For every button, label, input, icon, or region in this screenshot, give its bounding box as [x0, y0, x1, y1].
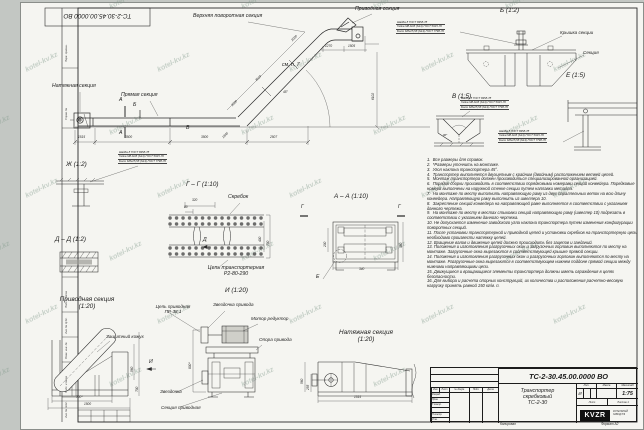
cut-mark-v: В	[186, 126, 189, 132]
label-upper-turn-section: Верхняя поворотная секция	[193, 14, 262, 20]
top-left-stamp: ТС-2-30.45.00.0000 ВО	[47, 11, 148, 18]
view-title-drive20: Приводная секция (1:20)	[42, 297, 132, 311]
date-column	[482, 392, 498, 423]
view-title-tension20: Натяжная секция (1:20)	[315, 330, 417, 344]
view-drive20	[48, 328, 139, 410]
mass-value	[596, 388, 616, 398]
label-scraper: Скребок	[228, 195, 248, 201]
label-motor-reducer: Мотор редуктор	[251, 317, 289, 322]
fastener-callout-4: Шайба 8 ГОСТ 6958-78 Гайка М8-6Н5 (S13) …	[498, 130, 547, 143]
label-drive-chain: Цепь приводная ПР-38,1	[143, 305, 203, 315]
view-title-b: Б (1:2)	[500, 8, 519, 15]
view-title-i20: И (1:20)	[225, 288, 248, 295]
dim-seg1: 1515	[78, 136, 85, 139]
detail-e	[563, 100, 637, 150]
sheets-label: Листов 1	[607, 398, 638, 405]
frame-label-podp-data-2: Подп. и дата	[65, 291, 68, 308]
fastener-line: Болт М8х25,58 (S13) ГОСТ 7798-70	[498, 139, 547, 143]
dim-top1: 1270	[325, 45, 332, 48]
label-see-note: см. п. 7	[282, 63, 300, 69]
lit-value: И	[576, 388, 583, 398]
dim-seg3: 3500	[201, 136, 208, 139]
dim-aa-340: 340	[359, 268, 364, 271]
label-conveyor-chain: Цепь транспортерная Р2-80-290	[198, 266, 274, 277]
dim-v-90: 90*	[443, 134, 447, 137]
frame-label-perv-primen: Перв. примен.	[65, 44, 68, 62]
view-mark-d: Д	[203, 238, 207, 244]
frame-label-podp-data-1: Подп. и дата	[65, 376, 68, 393]
lit-cell-2	[583, 388, 590, 398]
label-sprocket: Звездочка	[160, 390, 182, 395]
cut-mark-a-bottom: А	[119, 131, 122, 137]
drawing-page: kotel-kv.kzkotel-kv.kzkotel-kv.kzkotel-k…	[0, 0, 644, 430]
label-tension-section: Натяжная секция	[52, 84, 96, 90]
dim-height: 6102	[372, 93, 375, 100]
dim-drive-700b: 700	[136, 387, 139, 392]
dim-top2: 1505	[348, 45, 355, 48]
label-section-cover: Крышка секции	[560, 31, 593, 36]
dim-seg2: 3500	[125, 136, 132, 139]
kvzr-logo-subtext: КОТЕЛЬНЫЙ ЗАВОД РФ	[613, 410, 628, 416]
logo-cell: KVZR КОТЕЛЬНЫЙ ЗАВОД РФ	[576, 405, 638, 423]
view-mark-i: И	[149, 360, 153, 366]
cut-mark-g-left: Г	[301, 205, 304, 211]
dim-i20-800: 800*	[189, 362, 192, 369]
view-title-e: Е (1:5)	[566, 73, 585, 80]
technical-notes: 1. Все размеры для справок. 2. *Размеры …	[427, 158, 640, 289]
detail-zh	[56, 166, 138, 206]
label-drive-section: Приводная секция	[355, 7, 399, 13]
fastener-line: Болт М8х25,58 (S13) ГОСТ 7798-70	[396, 30, 445, 34]
frame-label-vzam-inv: Взам. инв. №	[65, 342, 68, 359]
corner-stamp	[78, 410, 130, 422]
dim-seg4: 2507	[270, 136, 277, 139]
label-section: Секция	[583, 51, 599, 56]
dim-drive-560: 560	[131, 367, 134, 372]
view-gg	[169, 202, 270, 268]
title-block-number: ТС-2-30.45.00.0000 ВО	[498, 368, 638, 383]
fastener-callout-1: Шайба 8 ГОСТ 6958-78 Гайка М8-6Н5 (S13) …	[118, 151, 167, 164]
label-drive-section-view: Секция приводная	[161, 406, 201, 411]
label-protective-casing: Защитный кожух	[106, 335, 144, 340]
cut-mark-g-right: Г	[398, 205, 401, 211]
dim-gg-400: 400	[259, 237, 262, 242]
label-drive-sprocket: Звездочка привода	[213, 303, 254, 308]
view-title-v: В (1:5)	[452, 94, 471, 101]
dim-drive-700: 700*	[76, 396, 83, 399]
view-title-gg: Г – Г (1:10)	[186, 182, 219, 189]
label-straight-section: Прямая секция	[121, 93, 158, 99]
dim-drive-1500: 1500	[84, 403, 91, 406]
title-block: ТС-2-30.45.00.0000 ВО Транспортер скребк…	[430, 367, 637, 422]
dim-aa-200: 200	[324, 242, 327, 247]
dim-tension-255: 255	[307, 385, 310, 390]
docnum-column	[449, 392, 469, 423]
dim-gg-80: 80	[184, 206, 188, 209]
detail-v	[434, 111, 484, 146]
dim-gg-700: 700	[267, 241, 270, 246]
kvzr-logo: KVZR	[580, 410, 610, 421]
dim-gg-320: 320	[192, 199, 197, 202]
view-dd	[60, 252, 98, 272]
title-block-name: Транспортер скребковый ТС-2-30	[498, 383, 576, 423]
label-drive-support: Опора привода	[259, 338, 292, 343]
row-approved: Утв.	[431, 417, 449, 423]
scale-value: 1:75	[616, 388, 638, 398]
footer-copied: Копировал	[500, 423, 516, 426]
cut-mark-b: Б	[133, 103, 136, 109]
sheet-label: Лист	[576, 398, 607, 405]
fastener-line: Болт М8х25,58 (S13) ГОСТ 7798-70	[460, 106, 509, 110]
fastener-callout-2: Шайба 8 ГОСТ 6958-78 Гайка М8-6Н5 (S13) …	[396, 21, 445, 34]
dim-tension-560: 560	[301, 379, 304, 384]
frame-label-inv-podl: Инв. № подл.	[65, 401, 68, 418]
frame-label-sprav: Справ. №	[65, 108, 68, 120]
dim-tension-1515: 1515	[354, 396, 361, 399]
dim-angle: 45°	[283, 91, 288, 94]
change-row-line-1	[431, 374, 498, 375]
detail-mark-e: Е	[316, 275, 319, 281]
footer-format: Формат А2	[601, 423, 618, 426]
main-dimensions	[73, 14, 379, 145]
frame-label-inv-dubl: Инв. № дубл.	[65, 317, 68, 334]
view-i20	[168, 311, 262, 407]
change-row-line-2	[431, 381, 498, 382]
view-title-aa: А – А (1:10)	[334, 194, 368, 201]
fastener-line: Болт М8х25,58 (S13) ГОСТ 7798-70	[118, 160, 167, 164]
cut-mark-a-top: А	[119, 98, 122, 104]
main-view	[70, 18, 430, 128]
dim-aa-380: 380	[400, 243, 403, 248]
view-title-zh: Ж (1:2)	[66, 162, 87, 169]
sign-column	[469, 392, 482, 423]
view-title-dd: Д – Д (1:2)	[55, 237, 86, 244]
